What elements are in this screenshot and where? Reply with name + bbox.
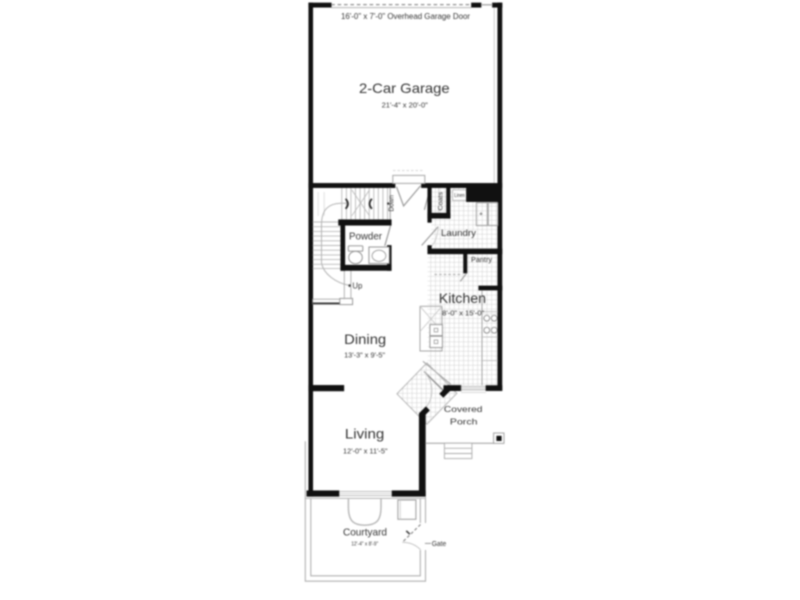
svg-text:Living: Living bbox=[345, 425, 384, 441]
svg-text:Laundry: Laundry bbox=[441, 228, 476, 238]
svg-text:Kitchen: Kitchen bbox=[439, 290, 486, 306]
svg-text:21'-4" x 20'-0": 21'-4" x 20'-0" bbox=[382, 101, 428, 110]
svg-text:Gate: Gate bbox=[432, 541, 447, 548]
svg-text:2-Car Garage: 2-Car Garage bbox=[359, 80, 450, 96]
svg-text:Covered: Covered bbox=[444, 404, 483, 414]
svg-text:Dining: Dining bbox=[344, 331, 386, 347]
svg-text:Down: Down bbox=[388, 195, 395, 212]
svg-text:8'-0" x 15'-0": 8'-0" x 15'-0" bbox=[442, 309, 484, 318]
svg-text:Courtyard: Courtyard bbox=[343, 528, 387, 539]
svg-text:Coats: Coats bbox=[438, 192, 445, 211]
svg-text:13'-3" x 9'-5": 13'-3" x 9'-5" bbox=[344, 353, 386, 360]
svg-text:16'-0" x 7'-0" Overhead Garage: 16'-0" x 7'-0" Overhead Garage Door bbox=[341, 11, 470, 21]
svg-text:Up: Up bbox=[352, 280, 362, 290]
svg-text:Pantry: Pantry bbox=[471, 257, 493, 264]
svg-text:Powder: Powder bbox=[349, 231, 383, 242]
svg-text:Porch: Porch bbox=[450, 417, 478, 427]
svg-text:Linen: Linen bbox=[454, 193, 465, 199]
svg-text:12'-0" x 11'-5": 12'-0" x 11'-5" bbox=[343, 449, 388, 456]
svg-text:12'-4" x 8'-9": 12'-4" x 8'-9" bbox=[351, 542, 378, 548]
